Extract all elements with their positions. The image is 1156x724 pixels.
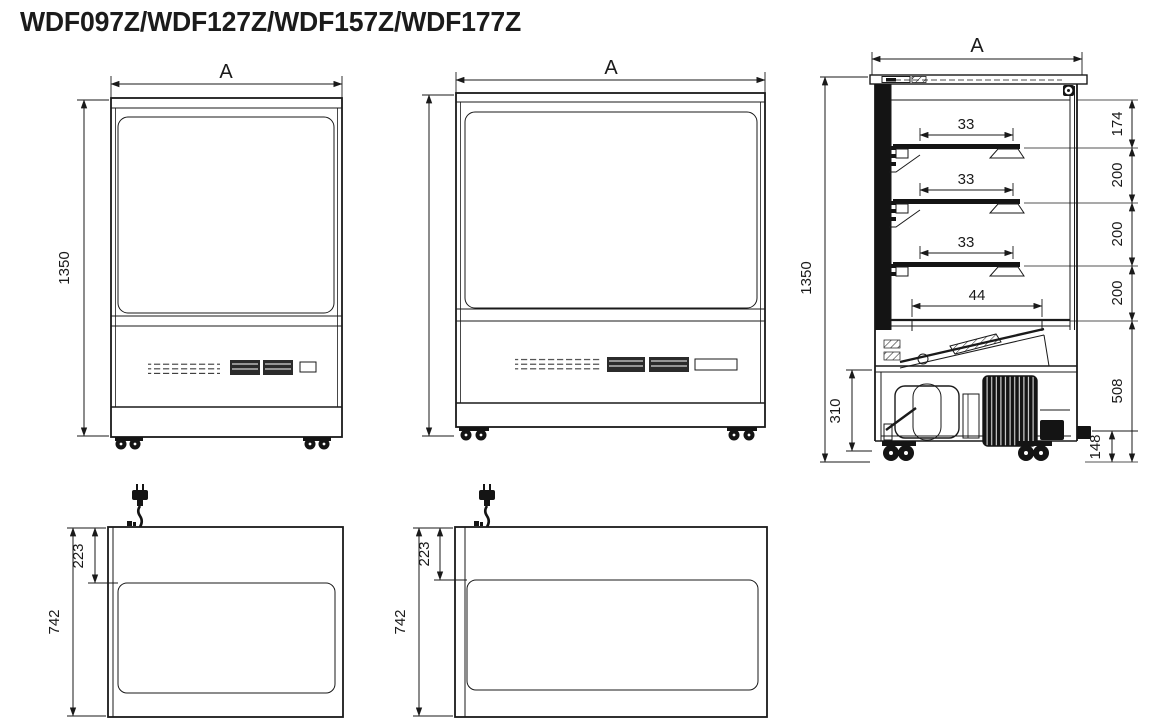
height-dim-label: 1350 xyxy=(56,251,73,284)
height-dimension: 1350 xyxy=(56,100,109,436)
technical-drawing-page: WDF097Z/WDF127Z/WDF157Z/WDF177Z A 1350 xyxy=(0,0,1156,724)
condenser-fan-icon xyxy=(983,376,1070,446)
power-plug-icon xyxy=(127,484,148,527)
front-view-narrow: A 1350 xyxy=(55,40,355,458)
rating-label-icon xyxy=(515,357,737,372)
machine-compartment xyxy=(875,366,1091,446)
cabinet-outline xyxy=(111,98,342,437)
segment-label: 200 xyxy=(1109,162,1126,187)
width-dimension: A xyxy=(111,61,342,98)
front-view-wide: A xyxy=(395,40,785,458)
shelf-depth-label: 33 xyxy=(958,234,975,251)
base-height-dimension: 148 xyxy=(1087,431,1138,462)
plan-view-wide: 742 223 xyxy=(390,468,790,724)
caster-wheel-icon xyxy=(459,427,757,441)
bottom-deck: 44 xyxy=(891,287,1138,331)
segment-label: 174 xyxy=(1109,111,1126,136)
air-duct xyxy=(884,329,1049,368)
shelf-depth-label: 33 xyxy=(958,171,975,188)
depth-dim-label: 742 xyxy=(392,609,409,634)
machine-height-label: 310 xyxy=(827,398,844,423)
deck-depth-label: 44 xyxy=(969,287,986,304)
width-dim-label: A xyxy=(219,61,233,83)
shelf-2: 33 xyxy=(889,171,1138,227)
width-dim-label: A xyxy=(604,57,618,79)
glass-door xyxy=(465,112,757,308)
shelf-depth-label: 33 xyxy=(958,116,975,133)
width-dimension: A xyxy=(872,35,1082,75)
back-panel xyxy=(875,84,891,330)
power-plug-icon xyxy=(474,484,495,527)
shelf-3: 33 xyxy=(891,234,1138,276)
caster-wheel-icon xyxy=(882,441,1052,461)
cabinet-outline xyxy=(456,93,765,427)
offset-dim-label: 223 xyxy=(416,541,433,566)
offset-dimension: 223 xyxy=(70,528,118,583)
segment-label: 200 xyxy=(1109,221,1126,246)
segment-label: 508 xyxy=(1109,378,1126,403)
base-height-label: 148 xyxy=(1087,434,1104,459)
glass-door xyxy=(118,117,334,313)
top-lid xyxy=(870,75,1087,84)
page-title: WDF097Z/WDF127Z/WDF157Z/WDF177Z xyxy=(20,6,521,38)
right-dimension-chain: 174 200 200 200 508 xyxy=(1077,100,1138,462)
offset-dimension: 223 xyxy=(416,528,467,580)
height-dim-label: 1350 xyxy=(798,261,815,294)
cabinet-top-outline xyxy=(455,527,767,717)
rating-label-icon xyxy=(148,360,316,375)
segment-label: 200 xyxy=(1109,280,1126,305)
machine-height-dimension: 310 xyxy=(827,370,872,451)
glass-top xyxy=(467,580,758,690)
width-dim-label: A xyxy=(970,35,984,57)
compressor-icon xyxy=(884,384,959,440)
shelf-1: 33 xyxy=(889,116,1138,172)
glass-top xyxy=(118,583,335,693)
height-dimension xyxy=(422,95,454,436)
cabinet-top-outline xyxy=(108,527,343,717)
plan-view-narrow: 742 223 xyxy=(50,468,380,724)
side-section-view: A 1350 xyxy=(800,28,1156,476)
caster-wheel-icon xyxy=(115,437,331,450)
offset-dim-label: 223 xyxy=(70,543,87,568)
width-dimension: A xyxy=(456,57,765,93)
depth-dim-label: 742 xyxy=(46,609,63,634)
